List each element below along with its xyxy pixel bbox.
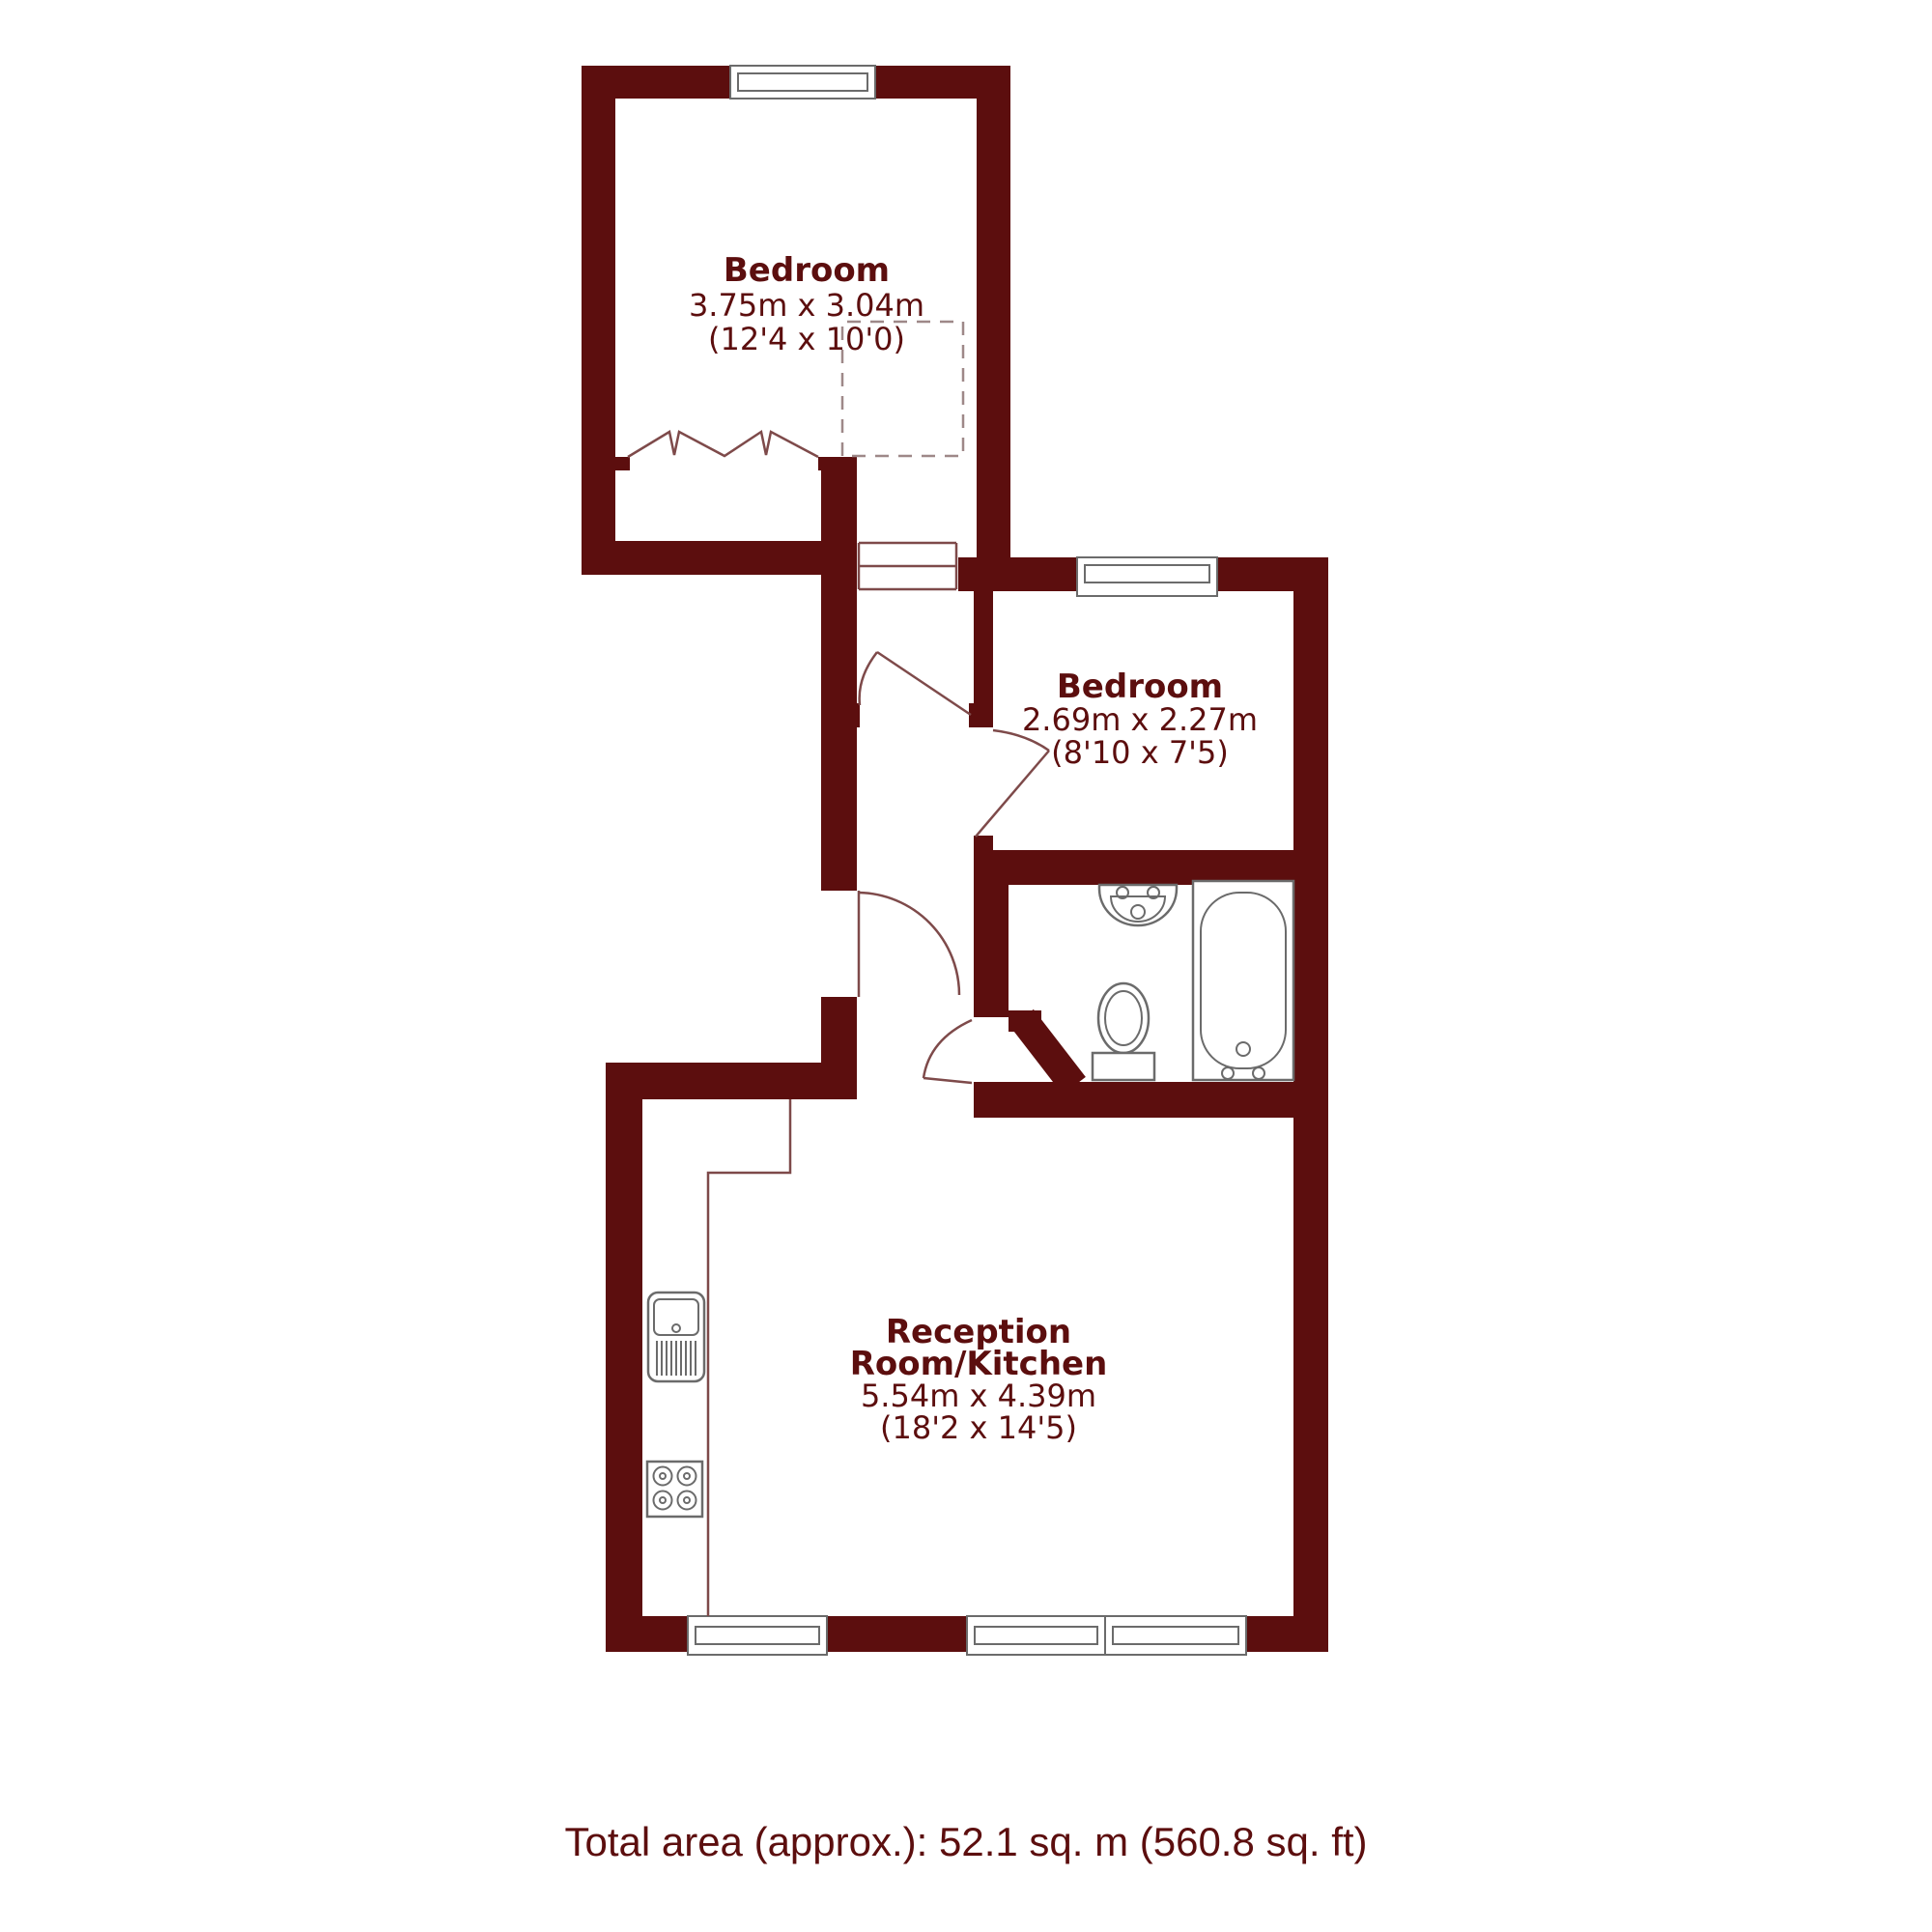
window-reception-right-icon [1105, 1616, 1246, 1655]
wall-bed1-left [582, 66, 615, 575]
bedroom2-imperial: (8'10 x 7'5) [1051, 734, 1229, 771]
kitchen-sink-icon [648, 1293, 704, 1381]
bathroom-door-icon [923, 1020, 972, 1083]
bedroom1-imperial: (12'4 x 10'0) [708, 321, 905, 357]
kitchen-hob-icon [647, 1462, 702, 1517]
bedroom1-metric: 3.75m x 3.04m [689, 287, 924, 324]
hall-side-door-icon [859, 891, 959, 997]
wash-basin-icon [1099, 885, 1177, 925]
room-labels: Bedroom 3.75m x 3.04m (12'4 x 10'0) Bedr… [689, 251, 1258, 1446]
wall-bed2-bottom [974, 850, 1293, 885]
wall-bed1-bottom [582, 541, 857, 575]
wall-bath-left-stub [974, 997, 1009, 1017]
wall-bed1-partition-stub-left [582, 457, 630, 470]
bedroom2-door-icon [976, 730, 1049, 837]
wall-reception-bottom-left [606, 1616, 688, 1652]
wall-bed2-left-upper [974, 591, 993, 703]
wall-bath-bottom [974, 1082, 1293, 1118]
bathroom-fixtures [1093, 881, 1293, 1080]
bathtub-icon [1193, 881, 1293, 1080]
bedroom1-label: Bedroom [724, 251, 890, 290]
window-reception-left-icon [688, 1616, 827, 1655]
floor-plan-page: Bedroom 3.75m x 3.04m (12'4 x 10'0) Bedr… [0, 0, 1932, 1932]
wall-bath-left [974, 885, 1009, 997]
kitchen-fixtures [647, 1099, 790, 1616]
kitchen-worktop-icon [708, 1099, 790, 1616]
window-bed1-top-icon [730, 66, 875, 99]
wall-front-door-stub-left [821, 703, 860, 727]
wall-front-door-stub-right [969, 703, 993, 727]
wall-bed2-left-lower-stub [974, 836, 993, 850]
wall-bed2-top-left [958, 557, 1077, 591]
wall-bath-angled [1022, 1018, 1074, 1086]
wall-reception-left [606, 1063, 642, 1652]
wall-reception-bottom-right [1246, 1616, 1328, 1652]
wall-reception-top [606, 1063, 857, 1099]
floor-plan-drawing: Bedroom 3.75m x 3.04m (12'4 x 10'0) Bedr… [0, 0, 1932, 1932]
wall-hall-left-upper [821, 457, 857, 891]
bedroom2-label: Bedroom [1057, 668, 1223, 706]
wall-reception-bottom-mid [827, 1616, 967, 1652]
wall-bed1-right [977, 66, 1010, 557]
window-bed2-top-icon [1077, 557, 1217, 596]
window-reception-mid-icon [967, 1616, 1105, 1655]
entrance-threshold-icon [859, 543, 956, 589]
closet-bifold-icon [628, 432, 818, 457]
toilet-icon [1093, 983, 1154, 1080]
bedroom2-metric: 2.69m x 2.27m [1022, 701, 1258, 738]
front-door-icon [860, 652, 971, 715]
wall-right-outer [1293, 557, 1328, 1652]
reception-imperial: (18'2 x 14'5) [880, 1409, 1077, 1446]
total-area-text: Total area (approx.): 52.1 sq. m (560.8 … [564, 1819, 1367, 1864]
